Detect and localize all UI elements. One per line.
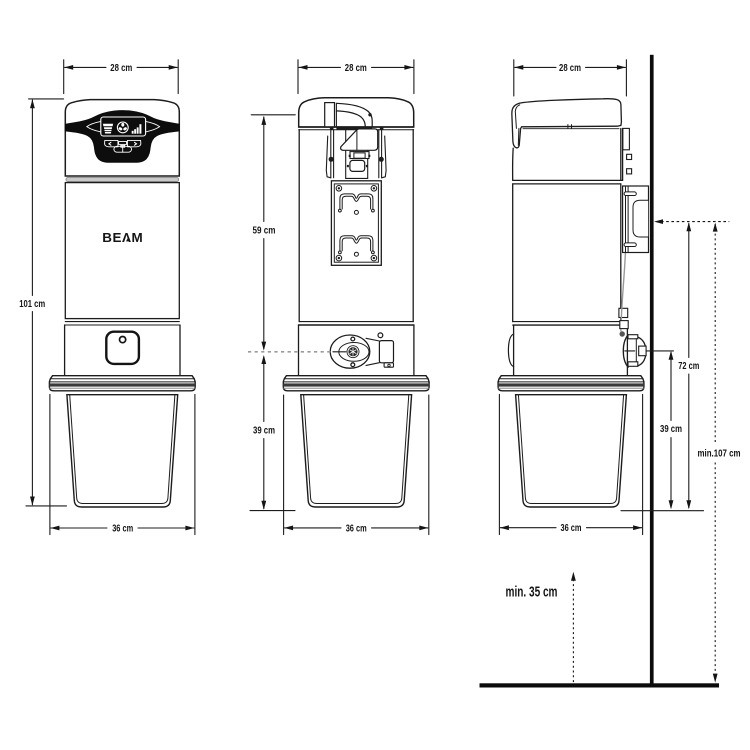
svg-text:28 cm: 28 cm [559,63,581,74]
svg-text:36 cm: 36 cm [112,523,133,534]
svg-text:101 cm: 101 cm [19,299,45,310]
svg-text:59 cm: 59 cm [253,225,276,236]
svg-text:39 cm: 39 cm [253,426,275,437]
svg-text:72 cm: 72 cm [678,361,699,372]
svg-text:36 cm: 36 cm [346,523,367,534]
svg-text:36 cm: 36 cm [561,523,582,534]
svg-text:min.107 cm: min.107 cm [698,448,741,459]
svg-text:BEΛM: BEΛM [102,231,143,245]
svg-text:28 cm: 28 cm [110,63,132,74]
svg-text:28 cm: 28 cm [345,63,367,74]
svg-text:min. 35 cm: min. 35 cm [506,583,558,600]
svg-text:39 cm: 39 cm [660,424,682,435]
